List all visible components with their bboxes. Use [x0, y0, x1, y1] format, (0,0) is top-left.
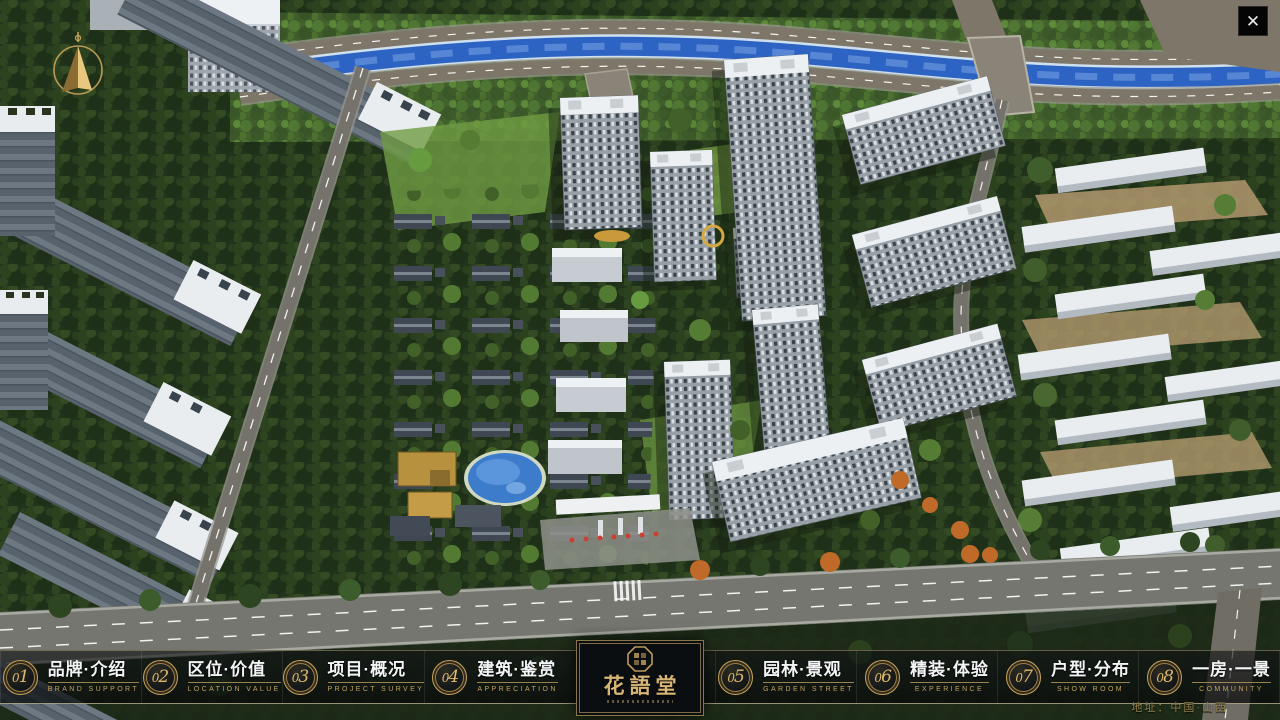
tower — [548, 95, 643, 240]
aerial-render — [0, 0, 1280, 720]
close-button[interactable]: ✕ — [1238, 6, 1268, 36]
nav-item-labels: 项目·概况 PROJECT SURVEY — [328, 661, 425, 694]
brand-seal-icon — [627, 646, 653, 672]
nav-item-labels: 户型·分布 SHOW ROOM — [1051, 661, 1130, 694]
tower — [741, 304, 831, 459]
nav-item-labels: 精装·体验 EXPERIENCE — [910, 661, 989, 694]
nav-item-number-badge: 04 — [432, 660, 467, 695]
project-address: 地址：中国·山西 — [1131, 699, 1228, 715]
nav-item-number: 04 — [442, 669, 458, 686]
nav-item-label-zh: 区位·价值 — [188, 661, 281, 680]
brand-name: 花語堂 — [599, 674, 682, 697]
nav-item-number-badge: 01 — [3, 660, 38, 695]
app-window: ✕ 01 品牌·介绍 BRAND SUPPORT 02 区位·价值 LOCATI… — [0, 0, 1280, 720]
nav-item-number: 05 — [727, 669, 743, 686]
nav-item-labels: 园林·景观 GARDEN STREET — [763, 661, 854, 694]
nav-item-labels: 品牌·介绍 BRAND SUPPORT — [48, 661, 139, 694]
close-icon: ✕ — [1246, 13, 1260, 30]
nav-item-label-zh: 户型·分布 — [1051, 661, 1130, 680]
nav-item-02[interactable]: 02 区位·价值 LOCATION VALUE — [141, 651, 282, 703]
nav-group-right: 05 园林·景观 GARDEN STREET 06 精装·体验 EXPERIEN… — [715, 651, 1280, 703]
nav-item-number-badge: 08 — [1147, 660, 1182, 695]
nav-item-number: 06 — [874, 669, 890, 686]
nav-item-label-zh: 园林·景观 — [763, 661, 854, 680]
nav-item-08[interactable]: 08 一房·一景 COMMUNITY — [1138, 651, 1280, 703]
nav-item-label-en: APPRECIATION — [477, 682, 557, 693]
gold-art-feature — [594, 230, 630, 242]
nav-item-number-badge: 05 — [718, 660, 753, 695]
nav-item-label-en: PROJECT SURVEY — [328, 682, 425, 693]
nav-item-number-badge: 02 — [143, 660, 178, 695]
scene-viewport[interactable] — [0, 0, 1280, 720]
nav-item-number: 07 — [1015, 669, 1031, 686]
nav-item-label-en: GARDEN STREET — [763, 682, 854, 693]
nav-item-label-zh: 项目·概况 — [328, 661, 425, 680]
nav-item-number: 02 — [152, 669, 168, 686]
nav-item-label-zh: 建筑·鉴赏 — [477, 661, 557, 680]
compass-icon[interactable] — [48, 30, 108, 100]
nav-item-label-en: BRAND SUPPORT — [48, 682, 139, 693]
nav-item-number: 03 — [292, 669, 308, 686]
nav-item-labels: 建筑·鉴赏 APPRECIATION — [477, 661, 557, 694]
nav-item-04[interactable]: 04 建筑·鉴赏 APPRECIATION — [424, 651, 565, 703]
nav-item-label-zh: 品牌·介绍 — [48, 661, 139, 680]
brand-tagline-microtext — [607, 700, 673, 703]
nav-item-06[interactable]: 06 精装·体验 EXPERIENCE — [856, 651, 997, 703]
nav-item-label-en: LOCATION VALUE — [188, 682, 281, 693]
nav-item-07[interactable]: 07 户型·分布 SHOW ROOM — [997, 651, 1138, 703]
nav-item-01[interactable]: 01 品牌·介绍 BRAND SUPPORT — [0, 651, 141, 703]
nav-group-left: 01 品牌·介绍 BRAND SUPPORT 02 区位·价值 LOCATION… — [0, 651, 565, 703]
nav-item-label-en: SHOW ROOM — [1051, 682, 1130, 693]
nav-item-label-en: COMMUNITY — [1192, 682, 1271, 693]
nav-item-03[interactable]: 03 项目·概况 PROJECT SURVEY — [282, 651, 425, 703]
nav-item-label-en: EXPERIENCE — [910, 682, 989, 693]
nav-item-label-zh: 精装·体验 — [910, 661, 989, 680]
pond — [464, 450, 546, 506]
nav-item-number: 08 — [1156, 669, 1172, 686]
nav-item-label-zh: 一房·一景 — [1192, 661, 1271, 680]
brand-logo-panel[interactable]: 花語堂 — [576, 640, 704, 716]
nav-item-number-badge: 03 — [283, 660, 318, 695]
tower — [639, 150, 717, 291]
nav-item-number-badge: 06 — [865, 660, 900, 695]
nav-item-labels: 区位·价值 LOCATION VALUE — [188, 661, 281, 694]
nav-item-number: 01 — [12, 669, 28, 686]
nav-item-number-badge: 07 — [1006, 660, 1041, 695]
nav-item-labels: 一房·一景 COMMUNITY — [1192, 661, 1271, 694]
nav-item-05[interactable]: 05 园林·景观 GARDEN STREET — [715, 651, 856, 703]
tower — [711, 54, 827, 332]
